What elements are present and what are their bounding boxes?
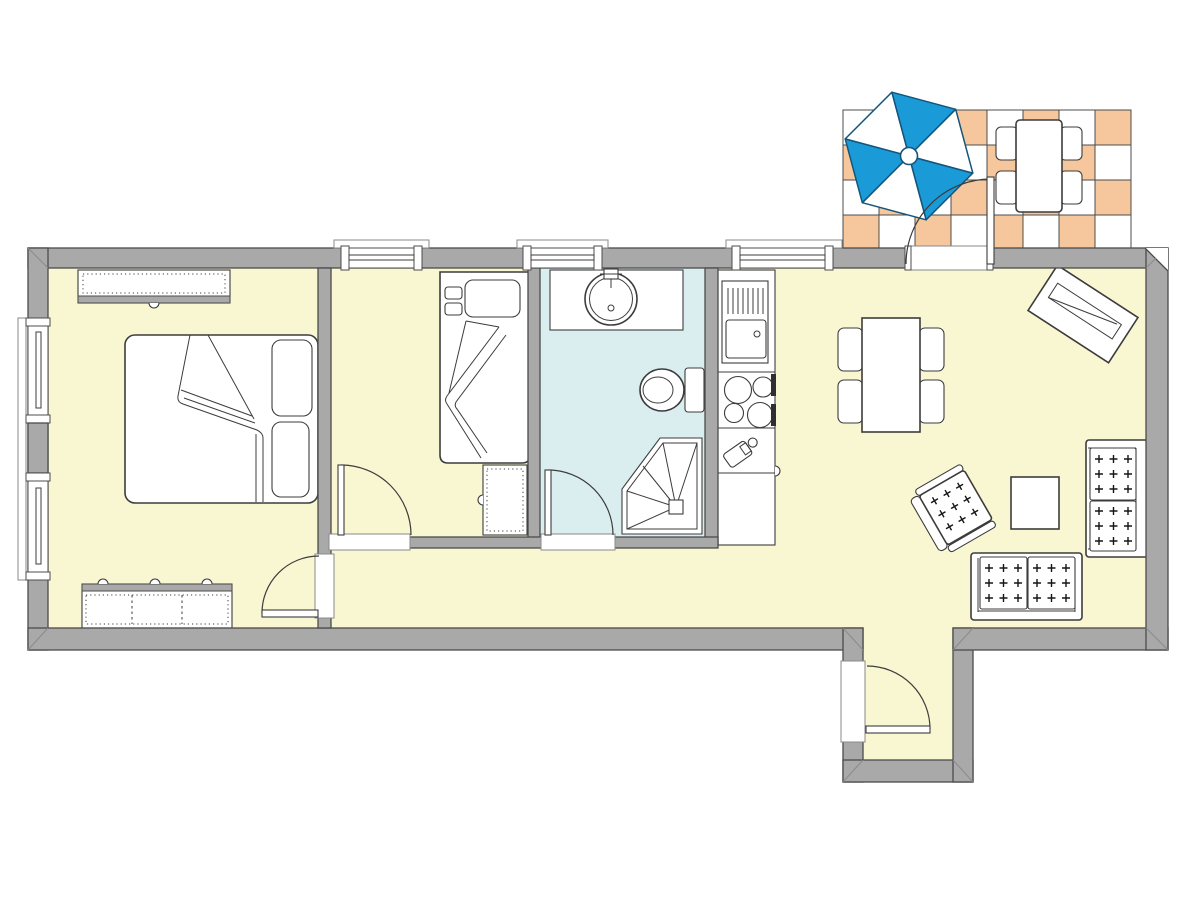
terrace-tile [1023,215,1059,250]
terrace-tile [1095,145,1131,180]
floor-plan-canvas [0,0,1200,900]
interior-wall-bath-left [528,268,540,545]
cabinet-handle [775,466,780,476]
pillow [465,280,520,317]
nightstand-knob [478,495,483,505]
dining-chair [919,380,944,423]
toilet-tank [685,368,704,412]
dining-chair [838,380,863,423]
window-bedroom-main-lower [26,473,50,580]
double-bed [125,335,318,503]
wardrobe-knob [150,579,160,584]
coffee-table [1011,477,1059,529]
window-pier [28,423,48,473]
umbrella-pole [901,148,918,165]
patio-chair [1060,171,1082,204]
terrace-tile [1095,215,1131,250]
tall-appliance-unit [722,281,768,363]
bedroom-small-door-opening [329,534,410,550]
toilet [640,368,704,412]
dining-chair [838,328,863,371]
terrace-door-opening [906,246,992,270]
patio-chair [996,171,1018,204]
terrace-tile [1095,180,1131,215]
nightstand [478,465,527,535]
interior-wall-bedrooms [318,268,331,557]
door-leaf [262,610,318,617]
exterior-wall-right [1146,248,1168,650]
patio-table [1016,120,1062,212]
terrace-tile [1095,110,1131,145]
interior-wall-hall-a [408,537,543,548]
window-bathroom [517,240,608,270]
terrace-tile [951,215,987,250]
window-kitchen [726,240,842,270]
interior-wall-bath-right [705,268,718,545]
vanity-sink [550,269,683,330]
dining-chair [919,328,944,371]
wardrobe-knob [149,303,159,308]
burner [748,403,773,428]
kitchen [716,270,780,545]
exterior-wall-bottom [28,628,863,650]
appliance-door [726,320,766,358]
terrace-tile [915,215,951,250]
terrace-tile [1059,215,1095,250]
terrace-tile [843,215,879,250]
wardrobe-bottom [82,579,232,628]
patio-chair [996,127,1018,160]
shower-drain [669,500,683,514]
terrace-tile [879,215,915,250]
floor-plan-drawing [0,0,1200,900]
door-leaf [338,465,344,535]
wardrobe-knob [98,579,108,584]
burner [753,377,773,397]
cooktop-panel [771,374,776,396]
wardrobe-knob [202,579,212,584]
door-leaf [866,726,930,733]
wardrobe-top [78,270,230,308]
bedroom-main-door-opening [315,554,334,618]
door-leaf [987,177,994,264]
pillow [272,340,312,416]
toilet-bowl [640,369,684,411]
dining-table [862,318,920,432]
patio-chair [1060,127,1082,160]
burner [725,404,744,423]
single-bed [440,272,530,463]
sofa-two-seat-right [1086,440,1148,557]
entry-door-opening [841,661,865,742]
vestibule-wall-right [953,628,973,782]
burner [725,377,752,404]
door-leaf [545,470,551,535]
sofa-two-seat-bottom [971,553,1082,620]
bathroom-door-opening [541,534,615,550]
window-bedroom-small [334,240,429,270]
cooktop-panel [771,404,776,426]
interior-wall-hall-b [613,537,718,548]
pillow [272,422,309,497]
exterior-wall-bottom-right [953,628,1168,650]
